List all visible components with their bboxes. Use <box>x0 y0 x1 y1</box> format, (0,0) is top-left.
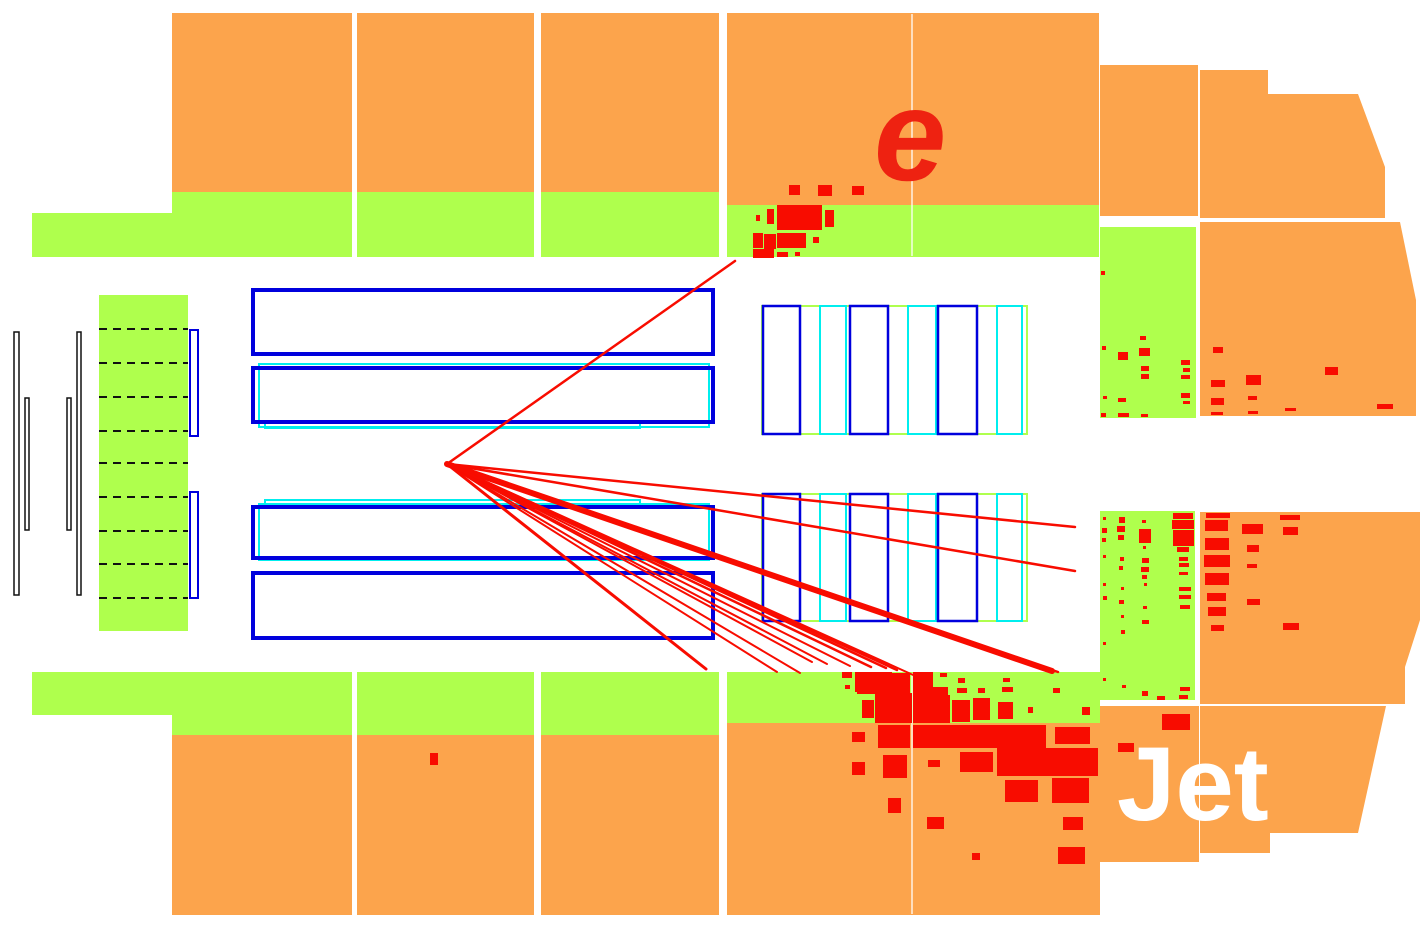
energy-deposit <box>1211 412 1223 415</box>
energy-deposit <box>1283 623 1299 630</box>
energy-deposit <box>1213 347 1223 353</box>
hadronic-calo-cell <box>1100 65 1198 216</box>
energy-deposit <box>1102 538 1106 542</box>
backward-tracker-plane <box>190 330 198 436</box>
energy-deposit <box>973 698 990 720</box>
energy-deposit <box>913 725 1046 748</box>
energy-deposit <box>753 249 774 258</box>
energy-deposit <box>1053 688 1060 693</box>
forward-tracker-frame <box>762 494 1027 621</box>
energy-deposit <box>1211 380 1225 387</box>
energy-deposit <box>818 185 832 196</box>
energy-deposit <box>1141 567 1149 572</box>
energy-deposit <box>789 185 800 195</box>
energy-deposit <box>1118 352 1128 360</box>
forward-tracker-module <box>763 494 800 621</box>
energy-deposit <box>875 693 912 723</box>
hadronic-calo-cell <box>172 13 352 192</box>
energy-deposit <box>842 672 852 678</box>
energy-deposit <box>1082 707 1090 715</box>
hadronic-calo-cell <box>357 13 534 192</box>
forward-tracker-frame <box>762 306 1027 434</box>
energy-deposit <box>1102 528 1107 533</box>
energy-deposit <box>1181 360 1190 365</box>
energy-deposit <box>1118 398 1126 402</box>
energy-deposit <box>1180 687 1190 691</box>
energy-deposit <box>1179 557 1188 561</box>
energy-deposit <box>1002 687 1013 692</box>
energy-deposit <box>1247 545 1259 552</box>
energy-deposit <box>928 760 940 767</box>
energy-deposit <box>1280 515 1300 520</box>
energy-deposit <box>857 680 910 694</box>
energy-deposit <box>1103 517 1106 520</box>
energy-deposit <box>1173 513 1193 519</box>
backward-detector-plane <box>77 332 81 595</box>
energy-deposit <box>1179 587 1191 591</box>
energy-deposit <box>753 233 763 248</box>
energy-deposit <box>1121 630 1125 634</box>
hadronic-calo-cell <box>1200 70 1385 218</box>
energy-deposit <box>1144 583 1147 586</box>
energy-deposit <box>1205 538 1229 550</box>
energy-deposit <box>1141 366 1149 371</box>
energy-deposit <box>1103 583 1106 586</box>
em-calo-cell <box>32 213 172 257</box>
backward-detector-plane <box>14 332 19 595</box>
energy-deposit <box>1177 547 1189 552</box>
energy-deposit <box>1103 678 1106 681</box>
energy-deposit <box>1285 408 1296 411</box>
energy-deposit <box>1118 535 1124 540</box>
energy-deposit <box>1211 398 1224 405</box>
forward-tracker-module <box>938 306 977 434</box>
energy-deposit <box>1117 526 1125 532</box>
energy-deposit <box>1119 517 1125 523</box>
energy-deposit <box>1206 513 1230 518</box>
energy-deposit <box>767 209 774 224</box>
energy-deposit <box>1247 564 1257 568</box>
energy-deposit <box>1325 367 1338 375</box>
energy-deposit <box>997 748 1098 776</box>
energy-deposit <box>1180 605 1190 609</box>
energy-deposit <box>878 725 910 748</box>
energy-deposit <box>1139 529 1151 543</box>
em-calo-cell <box>172 192 352 257</box>
hadronic-calo-cell <box>541 13 719 192</box>
energy-deposit <box>972 853 980 860</box>
electron-label: e <box>874 62 946 208</box>
energy-deposit <box>777 252 788 257</box>
em-calo-cell <box>357 192 534 257</box>
energy-deposit <box>1172 520 1194 529</box>
central-tracker-chamber <box>253 573 713 638</box>
energy-deposit <box>1179 595 1191 599</box>
energy-deposit <box>1063 817 1083 830</box>
energy-deposit <box>1005 780 1038 802</box>
energy-deposit <box>764 234 776 249</box>
energy-deposit <box>795 252 800 256</box>
backward-tracker-plane <box>190 492 198 598</box>
energy-deposit <box>1248 411 1258 414</box>
energy-deposit <box>1119 566 1123 570</box>
energy-deposit <box>1246 375 1261 385</box>
energy-deposit <box>1247 599 1260 605</box>
energy-deposit <box>1183 368 1190 372</box>
forward-tracker-module <box>850 306 888 434</box>
backward-detector-plane <box>67 398 71 530</box>
energy-deposit <box>1122 685 1126 688</box>
central-tracker-chamber <box>253 290 713 354</box>
energy-deposit <box>1103 642 1106 645</box>
energy-deposit <box>1103 596 1107 600</box>
energy-deposit <box>1157 696 1165 700</box>
energy-deposit <box>1101 271 1105 275</box>
energy-deposit <box>1055 727 1090 744</box>
energy-deposit <box>825 210 834 227</box>
energy-deposit <box>1208 607 1226 616</box>
hadronic-calo-cell <box>357 735 534 915</box>
energy-deposit <box>1248 396 1257 400</box>
energy-deposit <box>998 702 1013 719</box>
energy-deposit <box>777 233 806 248</box>
energy-deposit <box>1142 620 1149 624</box>
energy-deposit <box>1121 615 1124 618</box>
energy-deposit <box>1121 587 1124 590</box>
energy-deposit <box>813 237 819 243</box>
em-calo-cell <box>172 672 352 735</box>
energy-deposit <box>1142 520 1146 523</box>
forward-tracker-module <box>763 306 800 434</box>
forward-tracker-cyan-module <box>997 306 1022 434</box>
energy-deposit <box>1183 401 1190 404</box>
energy-deposit <box>952 700 970 722</box>
energy-deposit <box>978 688 985 693</box>
energy-deposit <box>1207 593 1226 601</box>
energy-deposit <box>1179 563 1189 567</box>
event-display-canvas: e Jet <box>0 0 1425 938</box>
energy-deposit <box>958 678 965 683</box>
energy-deposit <box>1377 404 1393 409</box>
energy-deposit <box>845 685 850 689</box>
energy-deposit <box>430 753 438 765</box>
energy-deposit <box>940 673 947 677</box>
energy-deposit <box>888 798 901 813</box>
particle-track <box>447 464 777 672</box>
energy-deposit <box>1052 778 1089 803</box>
energy-deposit <box>1179 695 1188 699</box>
energy-deposit <box>1139 348 1150 356</box>
energy-deposit <box>1141 374 1149 379</box>
energy-deposit <box>1143 606 1147 609</box>
em-calo-cell <box>32 672 172 715</box>
energy-deposit <box>957 688 967 693</box>
event-display: e Jet <box>0 0 1425 938</box>
energy-deposit <box>1058 847 1085 864</box>
energy-deposit <box>1181 393 1190 398</box>
energy-deposit <box>1103 396 1107 399</box>
em-calo-cell <box>541 672 719 735</box>
em-calo-cell <box>357 672 534 735</box>
central-tracker-chamber <box>253 368 713 422</box>
hadronic-calo-cell <box>1200 512 1420 704</box>
energy-deposit <box>1142 691 1148 696</box>
energy-deposit <box>1028 707 1033 713</box>
energy-deposit <box>1103 555 1106 558</box>
energy-deposit <box>1205 573 1229 585</box>
forward-tracker-cyan-module <box>908 306 936 434</box>
hadronic-calo-cell <box>1200 222 1416 416</box>
hadronic-calo-cell <box>172 735 352 915</box>
energy-deposit <box>883 755 907 778</box>
energy-deposit <box>756 215 760 221</box>
energy-deposit <box>1173 530 1194 546</box>
energy-deposit <box>1142 558 1149 563</box>
energy-deposit <box>1143 546 1146 549</box>
energy-deposit <box>1119 600 1124 604</box>
energy-deposit <box>852 186 864 195</box>
energy-deposit <box>1179 572 1188 575</box>
em-calo-cell <box>541 192 719 257</box>
energy-deposit <box>1102 346 1106 350</box>
hadronic-calo-cell <box>541 735 719 915</box>
energy-deposit <box>1140 336 1146 340</box>
energy-deposit <box>1101 413 1106 417</box>
backward-detector-plane <box>25 398 29 530</box>
energy-deposit <box>960 752 993 772</box>
energy-deposit <box>1142 575 1147 579</box>
energy-deposit <box>1211 625 1224 631</box>
energy-deposit <box>1283 527 1298 535</box>
energy-deposit <box>1003 678 1010 682</box>
energy-deposit <box>1118 413 1129 417</box>
energy-deposit <box>1120 557 1124 561</box>
energy-deposit <box>862 700 874 718</box>
forward-tracker-cyan-module <box>820 306 846 434</box>
energy-deposit <box>1141 414 1148 417</box>
energy-deposit <box>1181 375 1190 379</box>
em-calo-cell <box>1100 227 1196 418</box>
energy-deposit <box>852 732 865 742</box>
energy-deposit <box>1205 520 1228 531</box>
jet-label: Jet <box>1117 726 1269 843</box>
energy-deposit <box>1242 524 1263 534</box>
energy-deposit <box>1204 555 1230 567</box>
energy-deposit <box>913 695 950 723</box>
energy-deposit <box>852 762 865 775</box>
energy-deposit <box>777 205 822 230</box>
energy-deposit <box>927 817 944 829</box>
